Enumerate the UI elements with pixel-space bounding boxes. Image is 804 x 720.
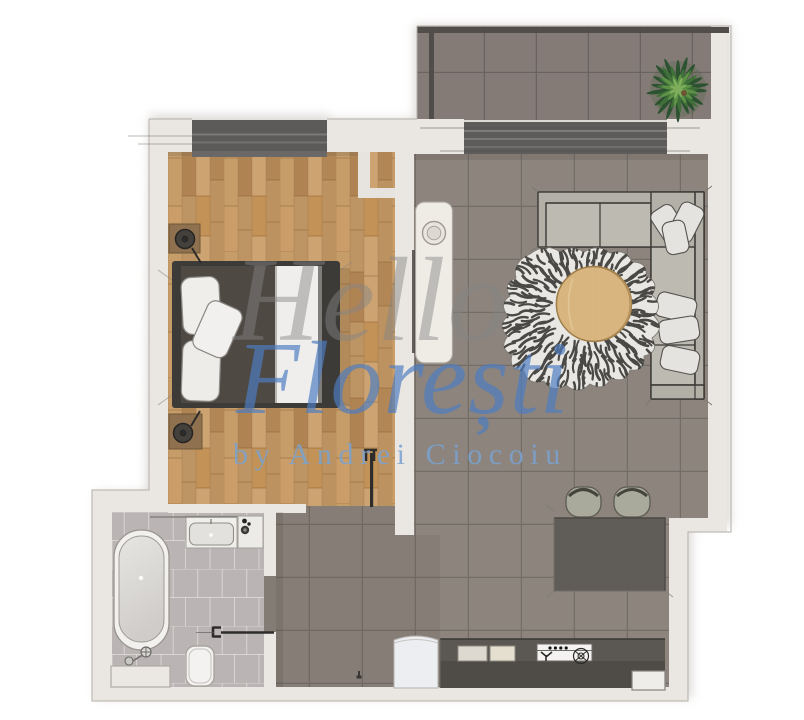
svg-text:by Andrei Ciocoiu: by Andrei Ciocoiu: [233, 438, 567, 471]
svg-text:Florești: Florești: [235, 321, 569, 436]
